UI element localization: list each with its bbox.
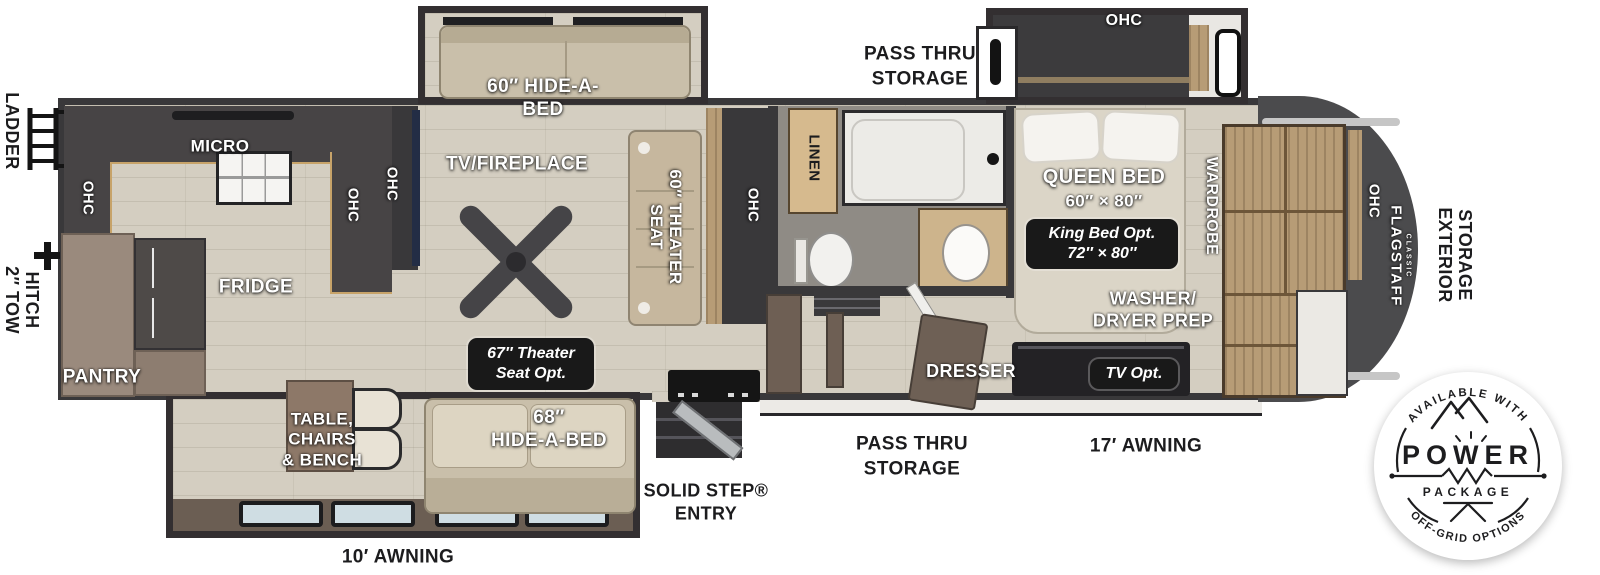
power-package-badge: AVAILABLE WITH OFF-GRID OPTIONS POWER [1374,372,1562,560]
refrigerator [134,238,206,350]
slide-window [331,501,415,527]
ohc-front-label: OHC [1365,184,1382,219]
living-ohc-shelf [706,108,722,324]
queen-bed-label: QUEEN BED [1043,166,1166,188]
range-cooktop [216,151,292,205]
pillow [1021,110,1102,164]
king-bed-option-box: King Bed Opt. 72″ × 80″ [1026,219,1178,269]
hall-desk [766,294,802,394]
bedroom-window [1215,29,1241,97]
fridge-label: FRIDGE [219,276,293,297]
theater-seat-label: 60″ THEATER SEAT [647,169,685,284]
toilet-tank [794,238,808,284]
bedroom-steps [814,290,880,316]
entry-griddle [668,370,760,402]
kitchen-lower-counter [134,350,206,396]
micro-label: MICRO [191,136,250,155]
linen-label: LINEN [805,135,822,182]
ohc-shelf [997,77,1193,83]
tv-option-box: TV Opt. [1090,359,1178,389]
slide-window [573,17,683,25]
tv-fireplace-label: TV/FIREPLACE [446,153,588,174]
pass-thru-storage-top-label: PASS THRU STORAGE [864,42,976,91]
hall-chair [826,312,844,388]
front-cabinet [1296,290,1348,396]
awning-rear-label: 10′ AWNING [342,546,454,567]
wardrobe-label: WARDROBE [1202,157,1220,255]
badge-power-text: POWER [1402,440,1534,470]
ohc-rear-label: OHC [79,181,96,216]
king-opt-line2: 72″ × 80″ [1067,244,1136,264]
floorplan-canvas: FLAGSTAFF CLASSIC [0,0,1600,575]
pass-thru-storage-bottom-label: PASS THRU STORAGE [856,432,968,481]
badge-package-text: PACKAGE [1423,485,1514,499]
washer-dryer-label: WASHER/ DRYER PREP [1093,288,1213,331]
dinette-label: TABLE, CHAIRS & BENCH [282,409,362,470]
dresser-label: DRESSER [926,361,1016,381]
chassis-skirt [760,399,1262,416]
pass-thru-compartment [976,26,1018,100]
pillow [1101,110,1182,164]
nightstand [1189,25,1209,91]
king-opt-line1: King Bed Opt. [1049,224,1156,244]
slide-window [443,17,553,25]
hide-a-bed-68-label: 68″ HIDE-A-BED [491,407,607,453]
bath-bottom-wall [772,286,1016,296]
hide-a-bed-60-label: 60″ HIDE-A- BED [487,76,599,122]
ohc-peninsula-label: OHC [344,188,361,223]
front-ohc-shelf [1348,130,1362,280]
brand-logo: FLAGSTAFF CLASSIC [1387,205,1412,307]
queen-bed-size-label: 60″ × 80″ [1065,191,1142,210]
tv-opt-label: TV Opt. [1106,364,1163,384]
tv-screen [412,110,420,266]
range-hood [172,111,294,120]
ladder-label: LADDER [2,92,22,169]
ladder-icon [22,104,64,174]
entry-steps [656,402,742,458]
awning-front-label: 17′ AWNING [1090,435,1202,456]
bath-vanity [918,208,1008,292]
step-rail [672,400,743,461]
bath-left-wall [768,106,778,298]
ohc-tv-wall-label: OHC [383,167,400,202]
slide-window [239,501,323,527]
toilet-bowl [808,232,854,288]
ohc-bedroom-slide-label: OHC [1106,12,1143,30]
theater-seat-option-box: 67″ Theater Seat Opt. [468,338,594,390]
theater-opt-line2: Seat Opt. [496,364,566,384]
solid-step-entry-label: SOLID STEP® ENTRY [644,480,769,527]
ohc-living-label: OHC [744,188,761,223]
brand-sub: CLASSIC [1403,234,1411,279]
theater-opt-line1: 67″ Theater [487,344,575,364]
shower [842,110,1006,206]
ceiling-fan-hub [506,252,526,272]
brand-name: FLAGSTAFF [1387,205,1404,307]
exterior-storage-label: EXTERIOR STORAGE [1435,207,1475,302]
pantry-label: PANTRY [63,366,141,387]
tow-hitch-label: 2″ TOW HITCH [2,266,42,334]
